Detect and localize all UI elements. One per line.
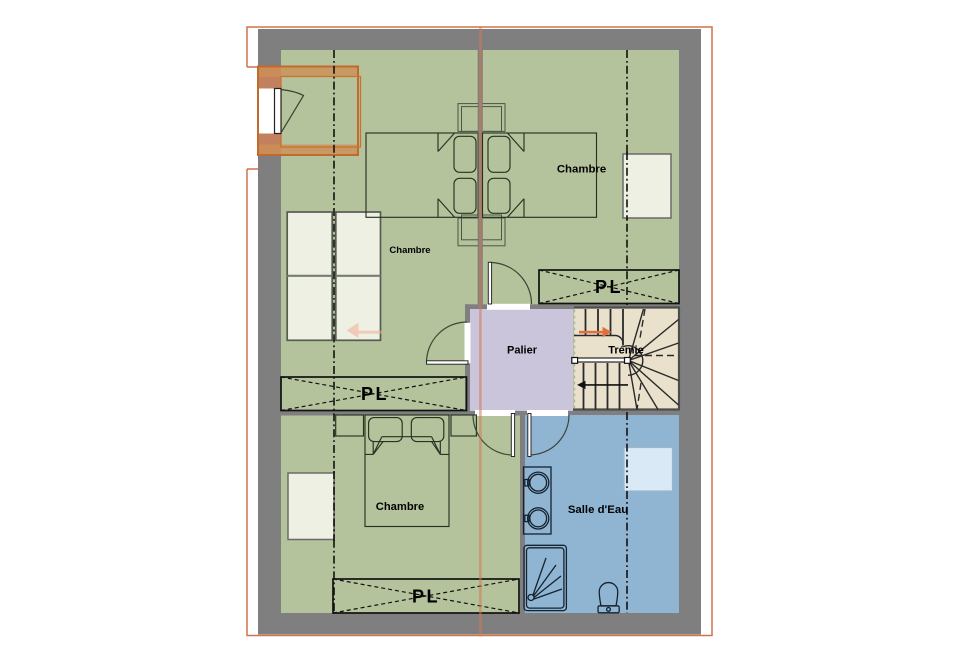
svg-text:Chambre: Chambre bbox=[557, 164, 606, 176]
svg-text:Salle d'Eau: Salle d'Eau bbox=[568, 504, 628, 516]
svg-text:Trémie: Trémie bbox=[608, 345, 643, 357]
svg-text:Palier: Palier bbox=[507, 345, 538, 357]
svg-text:PL: PL bbox=[412, 587, 440, 607]
svg-text:PL: PL bbox=[595, 277, 623, 297]
svg-text:Chambre: Chambre bbox=[376, 501, 425, 513]
svg-text:Chambre: Chambre bbox=[389, 245, 430, 256]
svg-text:PL: PL bbox=[361, 384, 389, 404]
